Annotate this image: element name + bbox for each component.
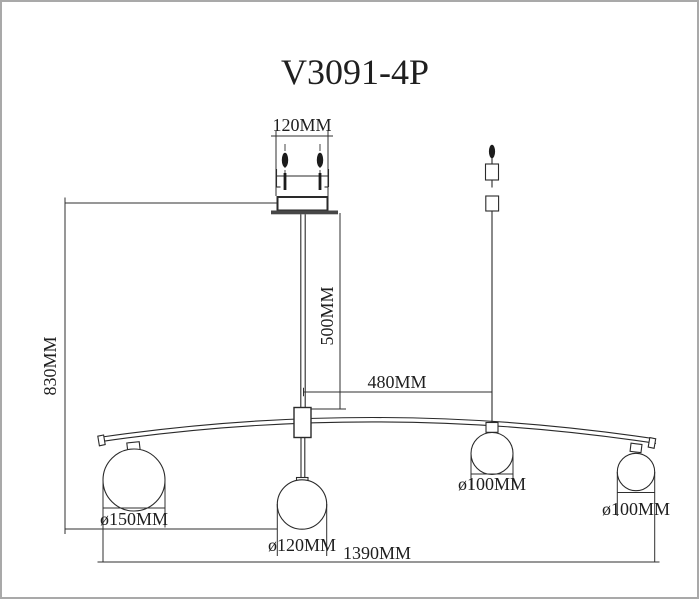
canopy-width-label: 120MM (272, 115, 331, 135)
product-title: V3091-4P (281, 52, 429, 92)
screw-right (317, 153, 323, 167)
globe-2-diameter-label: ø120MM (268, 535, 336, 555)
center-to-cable-label: 480MM (367, 372, 426, 392)
canopy (271, 197, 338, 214)
screw-left (282, 153, 288, 167)
overall-height-label: 830MM (40, 336, 60, 395)
globe-4-diameter-label: ø100MM (602, 499, 670, 519)
globe-4-sphere (617, 453, 654, 490)
arm-left-endcap (98, 435, 105, 446)
canopy-box (278, 197, 328, 211)
globe-3-sphere (471, 433, 513, 475)
technical-drawing: V3091-4P 120MM 500MM (0, 0, 699, 600)
arm-right-endcap (648, 438, 656, 449)
cable-adjuster (486, 164, 499, 180)
overall-width-label: 1390MM (343, 543, 411, 563)
globe-2 (277, 480, 326, 529)
cable-screw (489, 145, 495, 159)
globe-1-diameter-label: ø150MM (100, 509, 168, 529)
globe-2-sphere (277, 480, 326, 529)
globe-4-fitting (630, 443, 642, 452)
ceiling-plate (271, 211, 338, 215)
globe-3-diameter-label: ø100MM (458, 474, 526, 494)
drawing-page: V3091-4P 120MM 500MM (0, 0, 699, 600)
globe-3-fitting (486, 423, 498, 433)
rod-length-label: 500MM (317, 286, 337, 345)
globe-1-sphere (103, 449, 165, 511)
cable-grip (486, 196, 499, 211)
